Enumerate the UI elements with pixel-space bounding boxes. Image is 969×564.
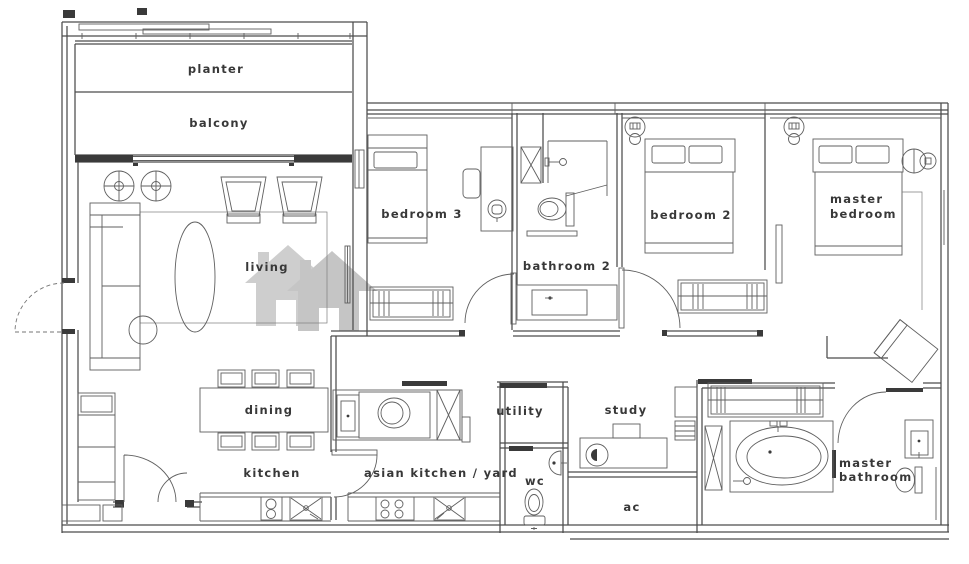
walls [62,22,949,539]
living-room-furniture [62,171,350,521]
room-label-utility: utility [496,404,544,418]
pillow-icon [652,146,685,163]
rug-icon [902,192,922,310]
shaft-icon [705,426,722,490]
room-label-bedroom3: bedroom 3 [381,207,462,221]
pillow-icon [819,146,852,163]
toilet-icon [538,193,574,226]
house-icon [287,251,377,331]
room-label-living: living [245,260,289,274]
entry-jamb [62,278,75,283]
oval-rug-icon [175,222,215,332]
round-side-table-icon [129,316,157,344]
wc-fixtures [524,451,567,530]
laundry-counter [333,390,470,442]
ceiling-lamp-icon [625,117,645,145]
dark-marks [62,8,923,507]
room-label-master-bedroom-line1: master [830,192,883,206]
wardrobe-icon [370,287,453,320]
bedroom3-furniture [368,135,516,324]
corner-mark [63,10,75,18]
room-label-asian-kitchen: asian kitchen / yard [364,466,518,480]
bedside-lamp-icon [902,149,936,173]
door-leaf [886,388,923,392]
office-chair-icon [488,200,506,222]
armchair-icon [874,320,938,383]
washer-icon [378,398,410,428]
armchair-icon [277,177,322,223]
sliding-door-icon [509,446,533,451]
door-swing-icon [124,455,187,502]
office-chair-icon [586,444,608,466]
room-label-planter: planter [188,62,244,76]
shaft-icon [521,147,541,183]
round-table-icon [141,171,171,201]
room-label-dining: dining [245,403,294,417]
window-band [355,150,364,188]
sink-icon [290,497,322,520]
monitor-icon [613,424,640,438]
corner-mark [137,8,147,15]
asian-kitchen-fixtures [332,390,500,521]
shower-icon [545,141,607,196]
room-label-study: study [605,403,648,417]
bathroom2-fixtures [517,141,617,320]
shaft-icon [437,390,460,440]
room-label-bedroom2: bedroom 2 [650,208,731,222]
room-label-wc: wc [525,474,545,488]
hob-icon [376,497,414,520]
round-table-icon [104,171,134,201]
bathtub-icon [733,421,828,485]
pillow-icon [689,146,722,163]
pillow-icon [856,146,889,163]
bedroom2-furniture [619,117,767,328]
wardrobe-icon [678,280,767,313]
pillow-icon [374,152,417,168]
floor-plan: planter balcony living bedroom 3 bathroo… [0,0,969,564]
twin-house-watermark-icon [245,245,377,331]
sliding-door-icon [402,381,447,386]
floor-plan-drawing: planter balcony living bedroom 3 bathroo… [0,0,969,564]
vanity-icon [905,420,933,458]
shelf-icon [675,421,695,440]
room-label-bathroom2: bathroom 2 [523,259,611,273]
single-bed-icon [368,135,427,243]
sink-icon [434,497,465,520]
sofa-icon [90,203,157,370]
study-furniture [580,387,697,468]
chair-icon [463,169,480,198]
sliding-door-icon [500,383,547,388]
master-bedroom-furniture [776,117,938,382]
room-label-kitchen: kitchen [243,466,300,480]
room-label-balcony: balcony [189,116,248,130]
balcony-slider-icon [294,155,352,162]
balcony-slider-icon [75,155,133,162]
armchair-icon [221,177,266,223]
room-label-master-bathroom-line1: master [839,456,892,470]
door-leaf [776,225,782,283]
room-label-ac: ac [623,500,640,514]
tub-platform [730,421,833,492]
entry-door-swing [15,283,64,332]
room-label-master-bathroom-line2: bathroom [839,470,913,484]
toilet-icon [524,489,545,530]
cabinet-icon [675,387,697,417]
door-swing-icon [619,268,680,328]
hob-icon [261,497,282,520]
door-swing-icon [465,273,516,324]
shelf-icon [527,231,577,236]
room-label-master-bedroom-line2: bedroom [830,207,897,221]
double-bed-icon [645,139,735,253]
ceiling-lamp-icon [784,117,804,145]
entry-jamb [62,329,75,334]
kitchen-counter [200,493,331,521]
door-swing-icon [838,392,886,443]
vanity-icon [517,285,617,320]
basin-icon [549,451,567,475]
